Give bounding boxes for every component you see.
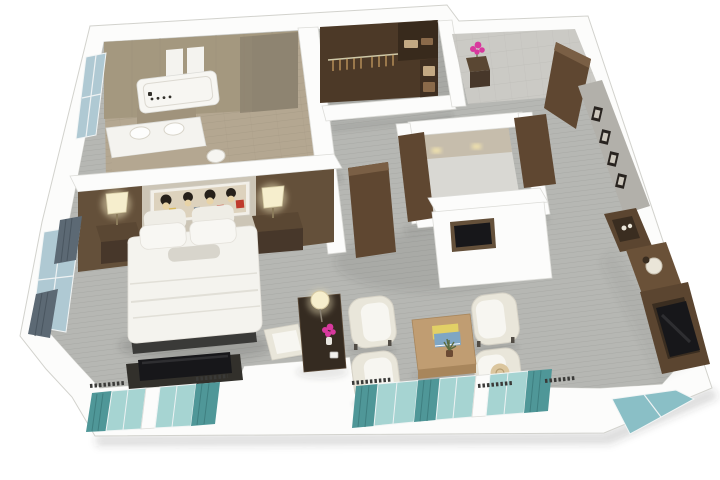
- desk-chair: [264, 324, 306, 360]
- floor-plan-render: [0, 0, 720, 480]
- tv-niche-wall: [428, 188, 552, 288]
- bath-divider-wall: [240, 36, 252, 113]
- coffee-table: [412, 314, 476, 384]
- writing-desk: [296, 289, 348, 379]
- tv-niche-screen: [454, 223, 492, 248]
- accent-light-2: [472, 144, 481, 149]
- closet-shelving-unit: [420, 58, 438, 102]
- folded-linens-1: [404, 40, 418, 48]
- walk-in-closet: [320, 20, 466, 122]
- nightstand-right: [252, 212, 303, 254]
- king-bed: [119, 204, 271, 361]
- coffee-table-books: [432, 324, 461, 348]
- folded-linens-2: [421, 38, 433, 45]
- armchair-1: [347, 294, 398, 356]
- shower-wall: [252, 32, 298, 112]
- armchair-3: [470, 291, 521, 353]
- floor-plan-svg: [0, 0, 720, 480]
- bedroom-door: [348, 162, 396, 258]
- desk-phone: [330, 352, 338, 358]
- accent-light-1: [432, 148, 441, 153]
